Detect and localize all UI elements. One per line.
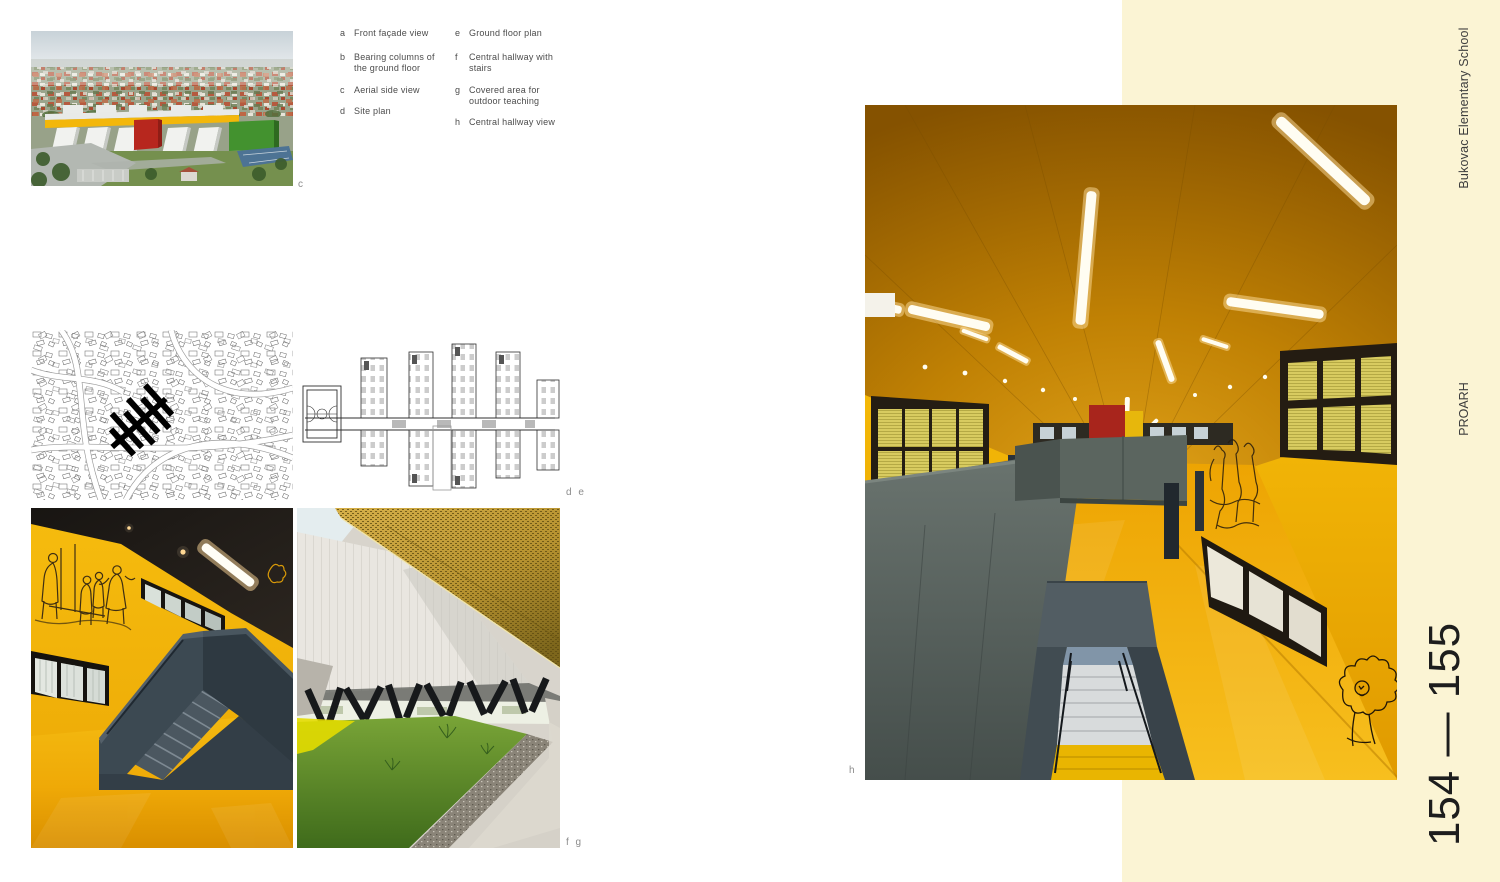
caption-letter: b	[340, 52, 354, 74]
figure-label-interiors: f g	[566, 837, 583, 848]
figure-covered-area-photo	[297, 508, 560, 848]
caption-letter: g	[455, 85, 469, 107]
right-top-window	[1280, 343, 1397, 465]
caption-letter: a	[340, 28, 354, 39]
caption-d: d Site plan	[340, 106, 447, 117]
red-end-wall	[1089, 405, 1125, 441]
suspended-gray-box	[1015, 435, 1187, 506]
green-box	[229, 120, 274, 151]
caption-text: Aerial side view	[354, 85, 447, 96]
figure-label-plans: d e	[566, 487, 586, 498]
caption-a: a Front façade view	[340, 28, 447, 39]
caption-letter: h	[455, 117, 469, 128]
project-title: Bukovac Elementary School	[1456, 28, 1472, 188]
architect-name: PROARH	[1456, 379, 1472, 439]
caption-text: Ground floor plan	[469, 28, 562, 39]
central-hallway-illustration	[865, 105, 1397, 780]
wall-light-fixture	[865, 293, 895, 317]
caption-text: Bearing columns of the ground floor	[354, 52, 447, 74]
caption-letter: c	[340, 85, 354, 96]
figure-central-hallway-photo	[865, 105, 1397, 780]
right-door-far	[1195, 471, 1204, 531]
caption-b: b Bearing columns of the ground floor	[340, 52, 447, 74]
caption-c: c Aerial side view	[340, 85, 447, 96]
caption-text: Central hallway view	[469, 117, 562, 128]
caption-f: f Central hallway with stairs	[455, 52, 562, 74]
page-numbers: 154 — 155	[1421, 615, 1469, 853]
red-cube	[134, 119, 158, 150]
caption-h: h Central hallway view	[455, 117, 562, 128]
caption-g: g Covered area for outdoor teaching	[455, 85, 562, 107]
figure-label-hallway: h	[849, 765, 857, 776]
figure-hallway-stairs-photo	[31, 508, 293, 848]
caption-text: Site plan	[354, 106, 447, 117]
figure-label-aerial: c	[298, 179, 305, 190]
hallway-stairs-illustration	[31, 508, 293, 848]
book-spread: { "page": { "background": "#ffffff", "ac…	[0, 0, 1500, 882]
caption-text: Front façade view	[354, 28, 447, 39]
figure-site-plan	[31, 330, 293, 500]
covered-area-illustration	[297, 508, 560, 848]
figure-floor-plan	[297, 330, 560, 492]
right-door	[1164, 483, 1179, 559]
figure-aerial-photo	[31, 31, 293, 186]
caption-text: Central hallway with stairs	[469, 52, 562, 74]
site-plan-drawing	[31, 330, 293, 500]
caption-e: e Ground floor plan	[455, 28, 562, 39]
caption-letter: d	[340, 106, 354, 117]
caption-text: Covered area for outdoor teaching	[469, 85, 562, 107]
caption-letter: e	[455, 28, 469, 39]
aerial-photo-illustration	[31, 31, 293, 186]
floor-plan-drawing	[297, 330, 560, 492]
caption-letter: f	[455, 52, 469, 74]
